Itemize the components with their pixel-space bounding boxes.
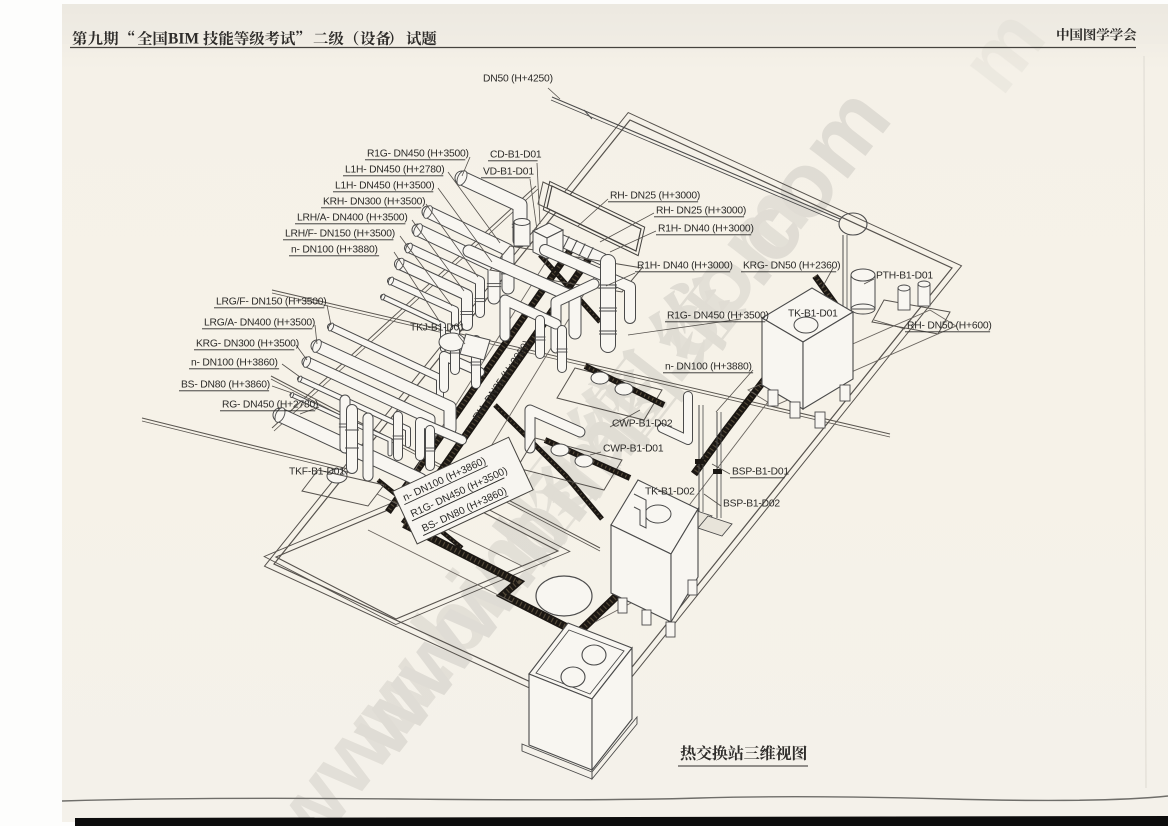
svg-text:BIM: BIM (168, 31, 199, 48)
svg-text:PTH-B1-D01: PTH-B1-D01 (876, 270, 933, 281)
svg-text:TKJ-B1-D01: TKJ-B1-D01 (410, 322, 465, 333)
svg-text:R1G- DN450 (H+3500): R1G- DN450 (H+3500) (367, 148, 469, 159)
svg-text:n- DN100 (H+3880): n- DN100 (H+3880) (665, 361, 752, 372)
svg-text:LRH/A- DN400 (H+3500): LRH/A- DN400 (H+3500) (297, 212, 408, 223)
svg-text:n- DN100 (H+3860): n- DN100 (H+3860) (191, 357, 278, 368)
svg-text:DN50 (H+4250): DN50 (H+4250) (483, 73, 553, 84)
svg-text:RH- DN25 (H+3000): RH- DN25 (H+3000) (656, 205, 746, 216)
svg-text:KRG- DN50 (H+2360): KRG- DN50 (H+2360) (743, 260, 840, 271)
svg-text:BS- DN80 (H+3860): BS- DN80 (H+3860) (181, 379, 270, 390)
svg-text:RG- DN450 (H+2780): RG- DN450 (H+2780) (222, 399, 318, 410)
svg-text:CWP-B1-D02: CWP-B1-D02 (612, 418, 673, 429)
svg-text:BSP-B1-D02: BSP-B1-D02 (723, 498, 780, 509)
svg-text:BSP-B1-D01: BSP-B1-D01 (732, 466, 789, 477)
svg-text:LRG/A- DN400 (H+3500): LRG/A- DN400 (H+3500) (204, 317, 315, 328)
svg-text:RH- DN50 (H+600): RH- DN50 (H+600) (907, 320, 992, 331)
svg-text:TK-B1-D01: TK-B1-D01 (788, 308, 838, 319)
svg-text:n- DN100 (H+3880): n- DN100 (H+3880) (291, 244, 378, 255)
svg-text:R1G- DN450 (H+3500): R1G- DN450 (H+3500) (667, 310, 769, 321)
svg-text:TKF-B1-D01: TKF-B1-D01 (289, 466, 345, 477)
svg-text:LRH/F- DN150 (H+3500): LRH/F- DN150 (H+3500) (285, 228, 395, 239)
svg-text:R1H- DN40 (H+3000): R1H- DN40 (H+3000) (637, 260, 733, 271)
svg-text:TK-B1-D02: TK-B1-D02 (645, 486, 695, 497)
svg-text:LRG/F- DN150 (H+3500): LRG/F- DN150 (H+3500) (216, 296, 327, 307)
svg-text:L1H- DN450 (H+2780): L1H- DN450 (H+2780) (345, 164, 445, 175)
svg-text:CD-B1-D01: CD-B1-D01 (490, 149, 542, 160)
svg-text:CWP-B1-D01: CWP-B1-D01 (603, 443, 664, 454)
svg-text:L1H- DN450 (H+3500): L1H- DN450 (H+3500) (335, 180, 435, 191)
svg-text:RH- DN25 (H+3000): RH- DN25 (H+3000) (610, 190, 700, 201)
svg-text:KRH- DN300 (H+3500): KRH- DN300 (H+3500) (323, 196, 425, 207)
svg-text:VD-B1-D01: VD-B1-D01 (483, 166, 534, 177)
svg-text:R1H- DN40 (H+3000): R1H- DN40 (H+3000) (658, 223, 754, 234)
svg-text:KRG- DN300 (H+3500): KRG- DN300 (H+3500) (196, 338, 299, 349)
